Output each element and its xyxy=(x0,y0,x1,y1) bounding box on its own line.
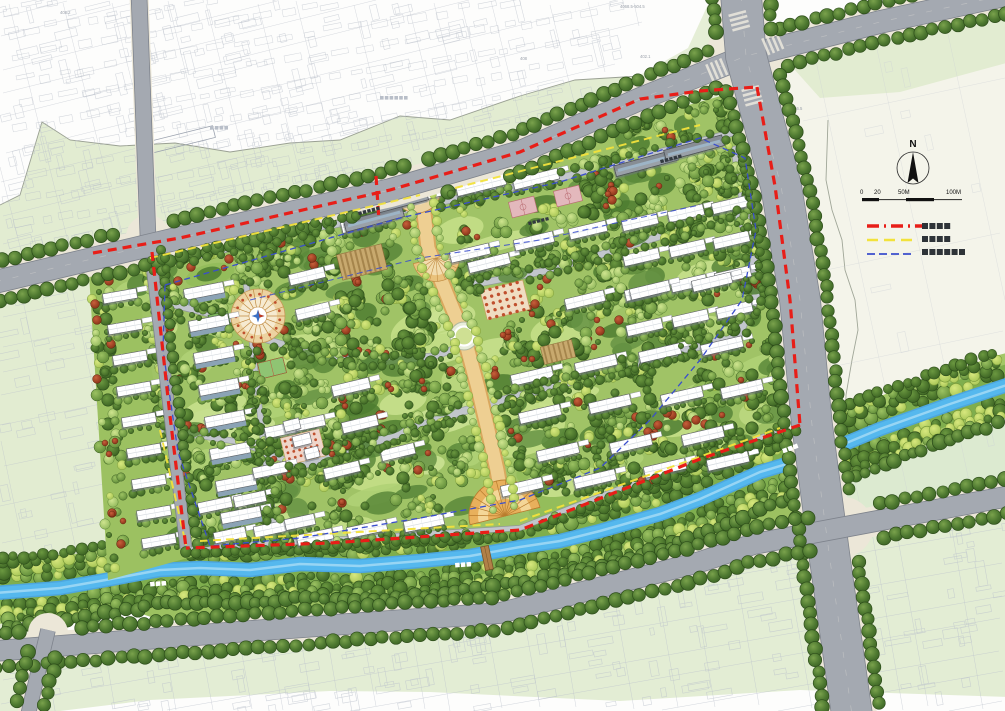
svg-text:100M: 100M xyxy=(946,190,961,196)
svg-text:402.1: 402.1 xyxy=(640,54,651,59)
svg-text:50M: 50M xyxy=(898,190,910,196)
svg-text:408: 408 xyxy=(520,56,528,61)
svg-text:20: 20 xyxy=(874,190,881,196)
svg-text:4068.5-504.5: 4068.5-504.5 xyxy=(620,4,645,9)
svg-text:N: N xyxy=(909,139,916,150)
svg-text:408.2: 408.2 xyxy=(60,10,71,15)
